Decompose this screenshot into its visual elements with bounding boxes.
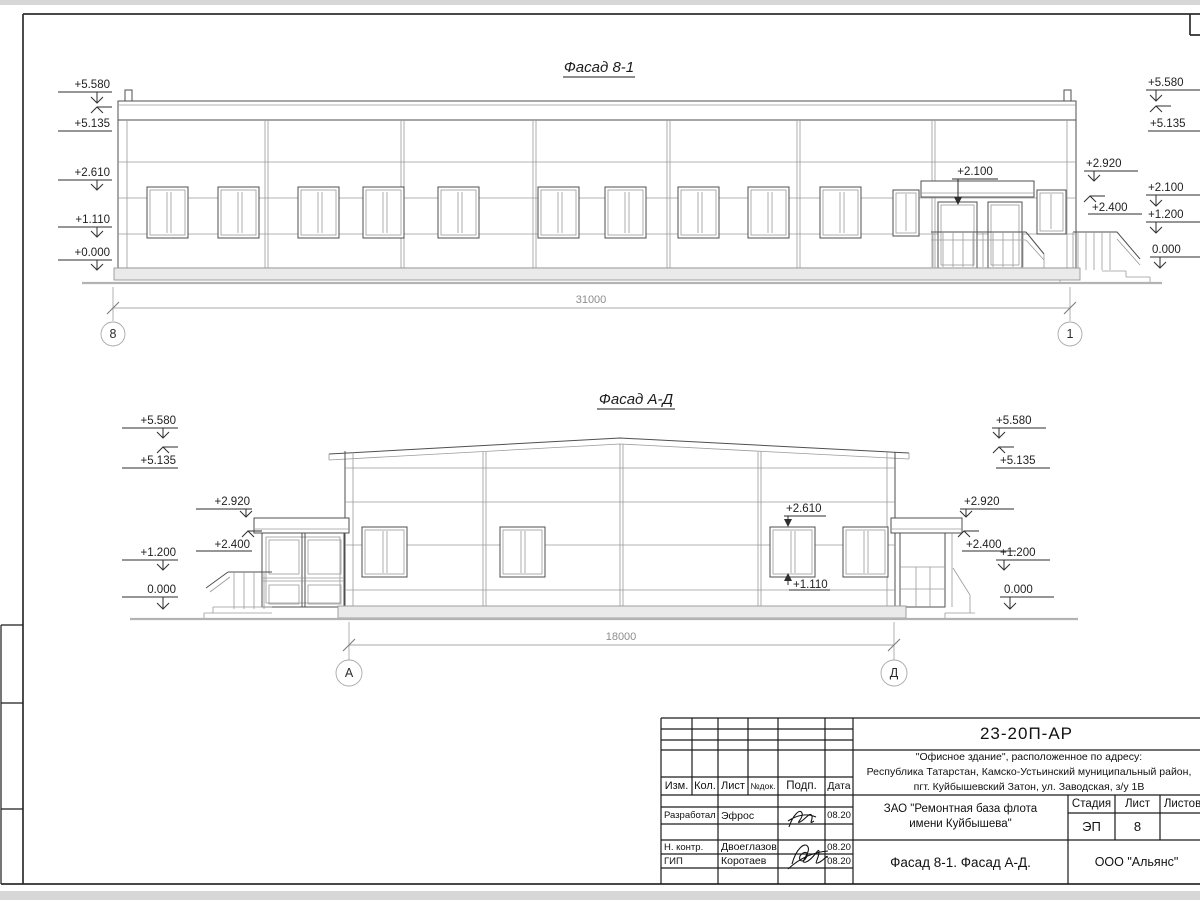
elevation-mark: +5.135 — [75, 118, 111, 130]
elevation-mark: +2.610 — [786, 503, 822, 515]
facade1-title: Фасад 8-1 — [564, 59, 634, 76]
doc-number: 23-20П-АР — [853, 718, 1200, 750]
stamp-col-dok: №док. — [748, 777, 778, 795]
stamp-role: Разработал — [661, 807, 721, 824]
elevation-mark: +2.400 — [966, 539, 1002, 551]
elevation-mark: +2.920 — [215, 496, 251, 508]
facade1-marks-left: +5.580 +5.135 +2.610 +1.110 +0.000 — [58, 79, 112, 270]
dimension-label: 18000 — [606, 631, 637, 643]
project-address-line: пгт. Куйбышевский Затон, ул. Заводская, … — [914, 780, 1145, 795]
elevation-mark: +5.135 — [1150, 118, 1186, 130]
page-edge-top — [0, 0, 1200, 5]
elevation-mark: +1.200 — [141, 547, 177, 559]
grid-axis-label: А — [345, 666, 354, 680]
stamp-date: 08.20 — [825, 854, 853, 868]
sheets-label: Листов — [1160, 795, 1200, 813]
dimension-label: 31000 — [576, 294, 607, 306]
project-address: "Офисное здание", расположенное по адрес… — [853, 750, 1200, 795]
sheet-number: 8 — [1115, 813, 1160, 839]
facade2-windows — [362, 527, 888, 577]
elevation-mark: 0.000 — [1152, 244, 1181, 256]
stamp-role: ГИП — [661, 854, 721, 868]
facade1-marks-right: +5.580 +5.135 +2.920 +2.100 +2.400 +1.20… — [1084, 77, 1200, 268]
stage-label: Стадия — [1068, 795, 1115, 813]
signature-razrabotal — [788, 811, 816, 827]
elevation-mark: +5.135 — [141, 455, 177, 467]
facade2-title: Фасад А-Д — [599, 391, 674, 408]
grid-axis-label: Д — [890, 666, 899, 680]
sheet-label: Лист — [1115, 795, 1160, 813]
stage-value: ЭП — [1068, 813, 1115, 839]
vestibule-canopy — [891, 518, 962, 533]
grid-axis-label: 8 — [110, 327, 117, 341]
elevation-mark: +2.920 — [1086, 158, 1122, 170]
drawing-sheet: Фасад 8-1 — [0, 0, 1200, 900]
sheet-title: Фасад 8-1. Фасад А-Д. — [853, 840, 1068, 884]
organization-name: ООО "Альянс" — [1068, 840, 1200, 884]
stamp-col-kol: Кол. — [692, 777, 718, 795]
stamp-role: Н. контр. — [661, 840, 721, 854]
vestibule-canopy — [254, 518, 349, 533]
facade2-plinth — [338, 606, 906, 618]
stamp-date: 08.20 — [825, 840, 853, 854]
elevation-mark: +5.580 — [1148, 77, 1184, 89]
stamp-col-list: Лист — [718, 777, 748, 795]
elevation-mark: +2.400 — [1092, 202, 1128, 214]
grid-axis-label: 1 — [1067, 327, 1074, 341]
elevation-mark: +1.110 — [793, 579, 828, 591]
stamp-col-izm: Изм. — [661, 777, 692, 795]
elevation-mark: +2.100 — [1148, 182, 1184, 194]
stamp-name: Эфрос — [718, 807, 781, 824]
elevation-mark: +2.100 — [957, 166, 993, 178]
facade2-marks-left: +5.580 +5.135 +2.920 +2.400 +1.200 0.000 — [122, 415, 262, 609]
page-edge-bottom — [0, 891, 1200, 900]
stamp-date: 08.20 — [825, 807, 853, 824]
signature-gip — [788, 845, 828, 869]
elevation-mark: +5.580 — [996, 415, 1032, 427]
stamp-col-data: Дата — [825, 777, 853, 795]
elevation-mark: +1.110 — [75, 214, 110, 226]
stamp-name: Коротаев — [718, 854, 781, 868]
entrance-canopy — [921, 181, 1034, 197]
elevation-mark: +0.000 — [75, 247, 111, 259]
facade2-dimension: 18000 А Д — [336, 622, 907, 686]
elevation-mark: +1.200 — [1148, 209, 1184, 221]
elevation-mark: +5.135 — [1000, 455, 1036, 467]
project-address-line: "Офисное здание", расположенное по адрес… — [916, 750, 1142, 765]
elevation-mark: 0.000 — [147, 584, 176, 596]
elevation-mark: +2.920 — [964, 496, 1000, 508]
elevation-mark: +2.610 — [75, 167, 111, 179]
facade1-plinth — [114, 268, 1080, 280]
facade1-dimension: 31000 8 1 — [101, 287, 1082, 346]
facade2-marks-right: +5.580 +5.135 +2.920 +2.400 +1.200 0.000 — [958, 415, 1054, 609]
elevation-mark: 0.000 — [1004, 584, 1033, 596]
project-address-line: Республика Татарстан, Камско-Устьинский … — [867, 765, 1192, 780]
client-name: ЗАО "Ремонтная база флота имени Куйбышев… — [853, 795, 1068, 839]
elevation-mark: +2.400 — [215, 539, 251, 551]
client-name-line: ЗАО "Ремонтная база флота — [884, 802, 1037, 817]
elevation-mark: +5.580 — [75, 79, 111, 91]
elevation-mark: +1.200 — [1000, 547, 1036, 559]
stamp-name: Двоеглазов — [718, 840, 781, 854]
facade2-left-vestibule — [204, 518, 349, 619]
facade-8-1-drawing: Фасад 8-1 — [58, 59, 1200, 346]
entrance-door — [938, 202, 977, 268]
facade-a-d-drawing: Фасад А-Д — [122, 391, 1078, 686]
client-name-line: имени Куйбышева" — [909, 817, 1012, 832]
elevation-mark: +5.580 — [141, 415, 177, 427]
stamp-col-podp: Подп. — [778, 777, 825, 795]
